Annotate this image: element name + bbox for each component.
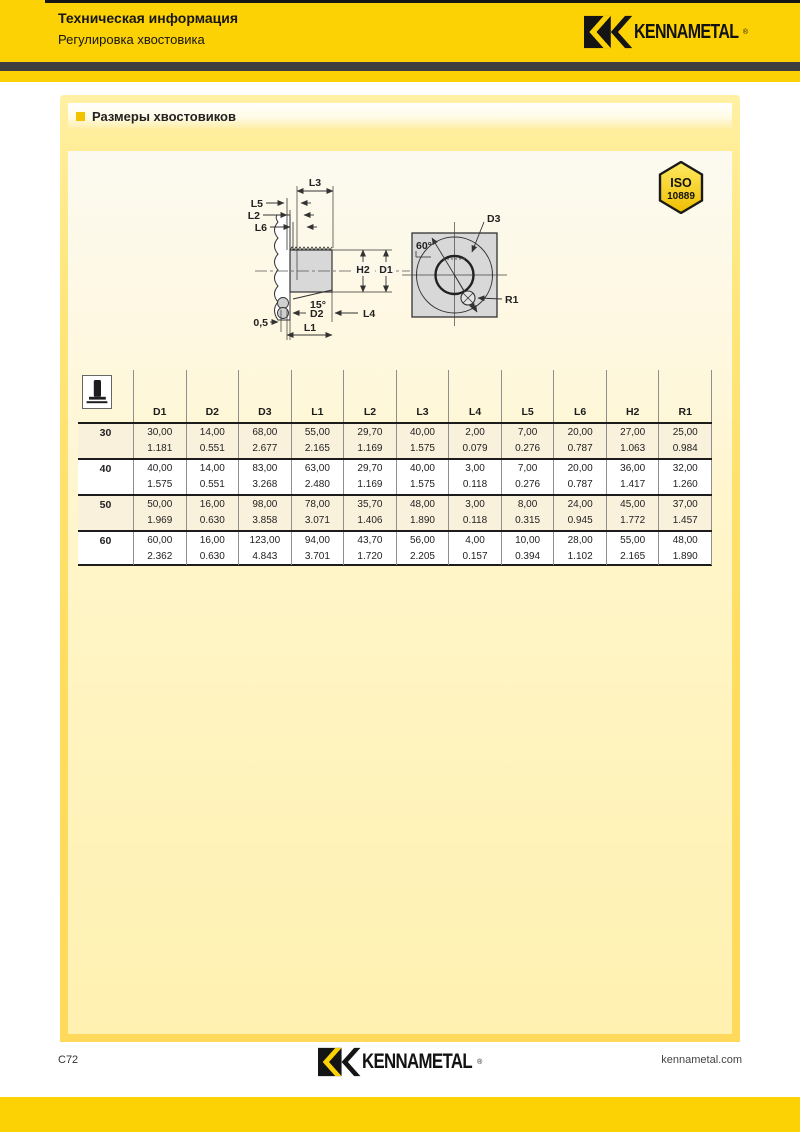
dim-label-60deg: 60° (416, 240, 432, 252)
kennametal-wordmark: KENNAMETAL (362, 1050, 472, 1074)
content-inner: ISO 10889 (68, 151, 732, 1034)
iso-badge: ISO 10889 (658, 161, 704, 214)
kennametal-wordmark: KENNAMETAL (634, 21, 738, 44)
dim-label-D1: D1 (379, 264, 393, 276)
dim-cell: 78,003.071 (292, 496, 345, 530)
size-label: 50 (78, 496, 134, 530)
dim-cell: 68,002.677 (239, 424, 292, 458)
technical-drawing: L3 L5 L2 L6 H2 D1 (80, 160, 640, 360)
dim-label-D3: D3 (487, 213, 501, 225)
top-rule (45, 0, 800, 3)
dim-cell: 29,701.169 (344, 424, 397, 458)
dim-cell: 60,002.362 (134, 532, 187, 565)
accent-strip (0, 71, 800, 82)
dim-cell: 27,001.063 (607, 424, 660, 458)
shank-icon-box (82, 375, 112, 409)
column-header-L5: L5 (502, 370, 555, 422)
dim-label-L1: L1 (304, 322, 316, 334)
dim-cell: 2,000.079 (449, 424, 502, 458)
dim-cell: 48,001.890 (397, 496, 450, 530)
dim-cell: 8,000.315 (502, 496, 555, 530)
dim-cell: 14,000.551 (187, 460, 240, 494)
dim-cell: 7,000.276 (502, 424, 555, 458)
dim-cell: 24,000.945 (554, 496, 607, 530)
shank-side-view: L3 L5 L2 L6 H2 D1 (248, 177, 410, 340)
column-header-L4: L4 (449, 370, 502, 422)
dim-cell: 40,001.575 (397, 460, 450, 494)
column-header-H2: H2 (607, 370, 660, 422)
table-row-60: 6060,002.36216,000.630123,004.84394,003.… (78, 530, 712, 566)
dim-cell: 94,003.701 (292, 532, 345, 565)
bottom-bar (0, 1097, 800, 1132)
dim-cell: 48,001.890 (659, 532, 712, 565)
dim-cell: 40,001.575 (397, 424, 450, 458)
dim-label-H2: H2 (356, 264, 370, 276)
dim-cell: 20,000.787 (554, 460, 607, 494)
dim-cell: 123,004.843 (239, 532, 292, 565)
size-table-body: 3030,001.18114,000.55168,002.67755,002.1… (78, 422, 712, 566)
dim-cell: 14,000.551 (187, 424, 240, 458)
size-label: 30 (78, 424, 134, 458)
catalog-page: Техническая информация Регулировка хвост… (0, 0, 800, 1132)
section-title: Размеры хвостовиков (92, 109, 236, 124)
column-header-D1: D1 (134, 370, 187, 422)
column-header-R1: R1 (659, 370, 712, 422)
iso-badge-line2: 10889 (667, 191, 695, 202)
table-row-30: 3030,001.18114,000.55168,002.67755,002.1… (78, 422, 712, 458)
table-row-40: 4040,001.57514,000.55183,003.26863,002.4… (78, 458, 712, 494)
dim-label-05: 0,5 (253, 317, 268, 329)
table-row-50: 5050,001.96916,000.63098,003.85878,003.0… (78, 494, 712, 530)
dim-cell: 4,000.157 (449, 532, 502, 565)
dim-cell: 45,001.772 (607, 496, 660, 530)
dim-cell: 10,000.394 (502, 532, 555, 565)
registered-mark: ® (477, 1059, 482, 1066)
size-table-header: D1D2D3L1L2L3L4L5L6H2R1 (78, 370, 712, 422)
dim-cell: 3,000.118 (449, 460, 502, 494)
dim-cell: 7,000.276 (502, 460, 555, 494)
size-table: D1D2D3L1L2L3L4L5L6H2R1 3030,001.18114,00… (78, 370, 712, 566)
dim-cell: 63,002.480 (292, 460, 345, 494)
column-header-L2: L2 (344, 370, 397, 422)
kennametal-k-mark-icon (584, 15, 634, 49)
dim-cell: 25,000.984 (659, 424, 712, 458)
kennametal-logo: KENNAMETAL® (584, 15, 748, 49)
dim-cell: 30,001.181 (134, 424, 187, 458)
size-label: 40 (78, 460, 134, 494)
dim-label-L3: L3 (309, 177, 321, 189)
dim-cell: 36,001.417 (607, 460, 660, 494)
size-icon-cell (78, 370, 134, 422)
iso-hexagon-icon: ISO 10889 (658, 161, 704, 214)
column-header-L3: L3 (397, 370, 450, 422)
dim-cell: 29,701.169 (344, 460, 397, 494)
website-link[interactable]: kennametal.com (661, 1054, 742, 1066)
shank-icon (85, 378, 109, 406)
dim-cell: 98,003.858 (239, 496, 292, 530)
dim-cell: 16,000.630 (187, 532, 240, 565)
column-header-L6: L6 (554, 370, 607, 422)
bullet-square-icon (76, 112, 85, 121)
column-header-L1: L1 (292, 370, 345, 422)
shank-face-view: 60° D3 R1 (402, 213, 519, 326)
dim-label-R1: R1 (505, 294, 519, 306)
page-subtitle: Регулировка хвостовика (58, 32, 205, 47)
dim-label-L6: L6 (255, 222, 267, 234)
dim-cell: 43,701.720 (344, 532, 397, 565)
iso-badge-line1: ISO (670, 176, 692, 190)
dim-cell: 35,701.406 (344, 496, 397, 530)
page-header: Техническая информация Регулировка хвост… (0, 0, 800, 62)
dim-cell: 55,002.165 (607, 532, 660, 565)
dim-cell: 3,000.118 (449, 496, 502, 530)
dim-cell: 55,002.165 (292, 424, 345, 458)
dim-label-L5: L5 (251, 198, 263, 210)
content-panel: Размеры хвостовиков ISO 10889 (60, 95, 740, 1042)
divider-bar (0, 62, 800, 71)
dim-cell: 20,000.787 (554, 424, 607, 458)
size-label: 60 (78, 532, 134, 565)
kennametal-k-mark-icon (318, 1046, 362, 1078)
dim-cell: 28,001.102 (554, 532, 607, 565)
section-header: Размеры хвостовиков (68, 103, 732, 129)
dim-cell: 16,000.630 (187, 496, 240, 530)
dim-label-L4: L4 (363, 308, 375, 320)
column-header-D3: D3 (239, 370, 292, 422)
page-title: Техническая информация (58, 10, 238, 26)
dim-cell: 37,001.457 (659, 496, 712, 530)
column-header-D2: D2 (187, 370, 240, 422)
dim-label-D2: D2 (310, 308, 324, 320)
dim-cell: 83,003.268 (239, 460, 292, 494)
dim-label-L2: L2 (248, 210, 260, 222)
registered-mark: ® (743, 29, 748, 36)
dim-cell: 56,002.205 (397, 532, 450, 565)
dim-cell: 40,001.575 (134, 460, 187, 494)
dim-cell: 32,001.260 (659, 460, 712, 494)
dim-cell: 50,001.969 (134, 496, 187, 530)
